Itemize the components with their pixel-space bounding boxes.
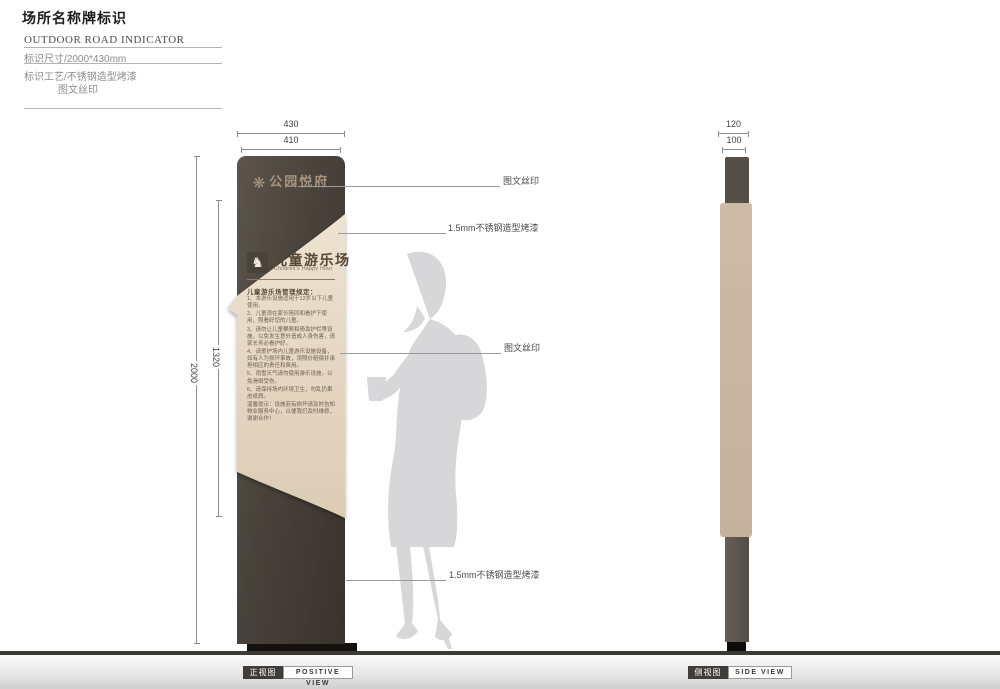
side-view-panel [720, 203, 752, 537]
dimline-side-inner [722, 149, 746, 150]
annotation-silkscreen-mid: 图文丝印 [504, 341, 540, 354]
dim-front-outer-width: 430 [237, 119, 345, 129]
footer-strip [0, 655, 1000, 689]
dim-panel-height: 1320 [211, 345, 221, 369]
dimline-front-height [196, 156, 197, 644]
dim-front-height: 2000 [189, 361, 199, 385]
dimline-front-inner [241, 149, 341, 150]
annotation-silkscreen-top: 图文丝印 [503, 174, 539, 187]
dimline-front-outer [237, 133, 345, 134]
leader-line-4 [346, 580, 446, 581]
rocking-horse-icon: ♞ [247, 252, 268, 273]
panel-title-en: Children's Happy Hour [274, 266, 333, 272]
side-view-lower-post [725, 536, 749, 642]
header-rule-3 [24, 108, 222, 109]
rule-line: 4、请爱护场内儿童游乐设施设备，如有人为损坏事故，须照价赔偿并承担相应的责任和费… [247, 349, 335, 370]
annotation-steel-top: 1.5mm不锈钢造型烤漆 [448, 221, 539, 234]
rule-line: 3、请勿让儿童攀爬和倚靠护栏等设施，以免发生意外造成人身伤害，请家长务必看护好。 [247, 327, 335, 348]
page-subtitle: OUTDOOR ROAD INDICATOR [24, 34, 185, 46]
rules-body: 1、本游乐设施适用于12岁以下儿童使用。 2、儿童须在家长陪同和看护下使用，照看… [247, 296, 335, 424]
spec-sheet: 场所名称牌标识 OUTDOOR ROAD INDICATOR 标识尺寸/2000… [0, 0, 1000, 689]
leader-line-3 [340, 353, 501, 354]
rule-line: 5、雨雪天气请勿使用游乐设施，以免滑倒受伤。 [247, 371, 335, 385]
dim-front-inner-width: 410 [241, 135, 341, 145]
dim-side-inner-width: 100 [722, 135, 746, 145]
header-rule-1 [24, 47, 222, 48]
front-view-label-cn: 正视图 [243, 666, 283, 679]
craft-spec-line2: 图文丝印 [58, 81, 98, 96]
panel-divider [247, 279, 335, 280]
front-view-label-en: POSITIVE VIEW [283, 666, 353, 679]
rules-title: 儿童游乐场管理规定： [247, 286, 317, 296]
human-figure-silhouette [355, 248, 510, 652]
rule-line: 6、请保持场内环境卫生，勿乱扔果皮纸屑。 [247, 387, 335, 401]
rule-line: 2、儿童须在家长陪同和看护下使用，照看好您的儿童。 [247, 311, 335, 325]
annotation-steel-bottom: 1.5mm不锈钢造型烤漆 [449, 568, 540, 581]
page-title: 场所名称牌标识 [22, 8, 127, 28]
sign-panel: ♞ 儿童游乐场 Children's Happy Hour 儿童游乐场管理规定：… [237, 156, 345, 644]
leader-line-2 [338, 233, 446, 234]
rule-line: 温馨提示：设施若有损坏请及时告知物业服务中心，以便我们及时维修，谢谢合作！ [247, 402, 335, 423]
side-view-label-cn: 侧视图 [688, 666, 728, 679]
dimline-side-outer [718, 133, 749, 134]
header-rule-2 [24, 63, 222, 64]
side-view-label-en: SIDE VIEW [728, 666, 792, 679]
leader-line-1 [298, 186, 500, 187]
dim-side-outer-width: 120 [718, 119, 749, 129]
side-view-top-post [725, 157, 749, 204]
front-pillar: ❋公园悦府 · · · · · · · · · ♞ 儿童游乐场 Children… [237, 156, 345, 644]
rule-line: 1、本游乐设施适用于12岁以下儿童使用。 [247, 296, 335, 310]
